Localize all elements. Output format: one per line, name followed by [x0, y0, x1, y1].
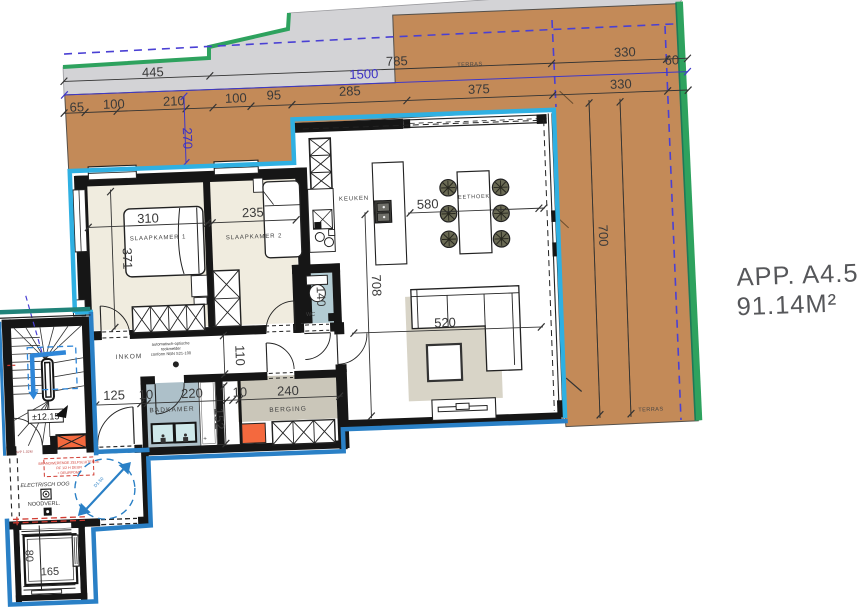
svg-text:10: 10 — [138, 387, 153, 403]
svg-text:NOODVERL.: NOODVERL. — [28, 501, 61, 508]
svg-text:TERRAS: TERRAS — [457, 62, 483, 69]
svg-text:520: 520 — [434, 315, 456, 331]
svg-text:1500: 1500 — [349, 66, 378, 82]
svg-text:WC: WC — [306, 312, 315, 318]
svg-text:330: 330 — [614, 44, 636, 60]
svg-text:80: 80 — [23, 550, 35, 563]
svg-text:445: 445 — [142, 64, 164, 80]
svg-text:100: 100 — [103, 96, 125, 112]
svg-text:140: 140 — [314, 286, 329, 307]
svg-text:EETHOEK: EETHOEK — [458, 194, 490, 201]
svg-text:APP. A4.5: APP. A4.5 — [736, 259, 859, 291]
svg-text:235: 235 — [242, 205, 264, 221]
svg-text:270: 270 — [180, 127, 196, 149]
svg-text:785: 785 — [386, 53, 408, 69]
svg-text:WP 1.02M: WP 1.02M — [16, 450, 32, 455]
svg-text:285: 285 — [339, 83, 361, 99]
svg-text:210: 210 — [163, 93, 185, 109]
svg-text:310: 310 — [137, 210, 159, 226]
svg-text:TERRAS: TERRAS — [638, 407, 664, 414]
svg-text:60: 60 — [664, 52, 679, 68]
svg-text:371: 371 — [120, 247, 136, 269]
svg-text:±12.15: ±12.15 — [32, 411, 60, 422]
svg-text:INKOM: INKOM — [116, 353, 143, 361]
svg-text:125: 125 — [103, 387, 125, 403]
svg-text:100: 100 — [225, 90, 247, 106]
svg-text:65: 65 — [69, 99, 84, 115]
svg-text:KEUKEN: KEUKEN — [339, 196, 369, 203]
svg-text:708: 708 — [369, 274, 385, 296]
svg-text:10: 10 — [232, 384, 247, 400]
svg-text:700: 700 — [596, 224, 612, 246]
svg-text:330: 330 — [610, 76, 632, 92]
svg-text:110: 110 — [232, 345, 248, 366]
svg-text:220: 220 — [181, 385, 203, 401]
svg-text:240: 240 — [277, 383, 299, 399]
svg-text:95: 95 — [266, 87, 281, 103]
svg-text:580: 580 — [417, 196, 439, 212]
svg-text:152: 152 — [212, 408, 228, 430]
svg-text:BERGING: BERGING — [269, 406, 307, 414]
svg-text:165: 165 — [41, 566, 60, 579]
svg-text:375: 375 — [468, 81, 490, 97]
svg-text:91.14M²: 91.14M² — [736, 290, 838, 322]
